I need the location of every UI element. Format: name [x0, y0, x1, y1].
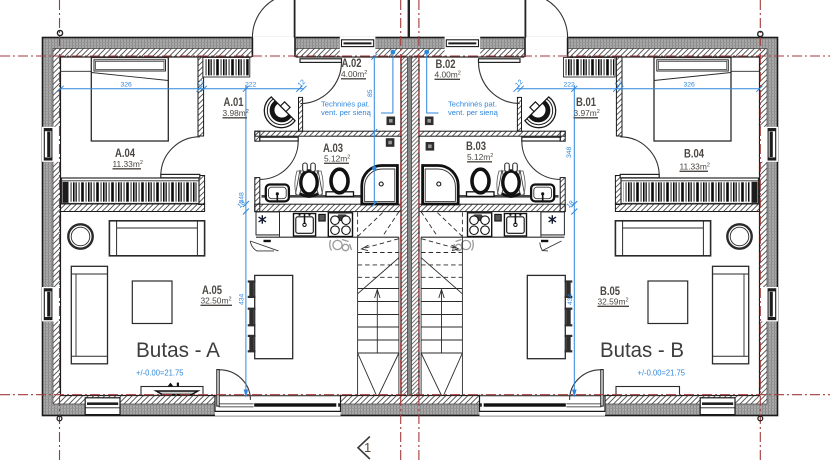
svg-text:vent. per sieną: vent. per sieną — [321, 108, 372, 117]
svg-text:4.00m2: 4.00m2 — [341, 69, 367, 79]
svg-text:11.33m2: 11.33m2 — [680, 162, 710, 172]
svg-text:1: 1 — [364, 440, 371, 455]
svg-text:+/-0.00=21.75: +/-0.00=21.75 — [638, 369, 686, 378]
svg-text:326: 326 — [121, 82, 133, 89]
svg-text:222: 222 — [245, 82, 257, 89]
svg-text:32.59m2: 32.59m2 — [598, 297, 629, 307]
svg-text:32.50m2: 32.50m2 — [201, 296, 232, 306]
svg-text:vent. per sieną: vent. per sieną — [448, 108, 499, 117]
svg-text:Butas - A: Butas - A — [136, 338, 221, 362]
svg-text:222: 222 — [564, 82, 576, 89]
svg-text:Butas - B: Butas - B — [600, 338, 684, 362]
svg-text:B.04: B.04 — [684, 149, 704, 161]
svg-text:11.33m2: 11.33m2 — [113, 159, 143, 169]
svg-text:4.00m2: 4.00m2 — [435, 70, 461, 80]
svg-text:3.98m2: 3.98m2 — [223, 108, 249, 118]
svg-text:434: 434 — [567, 293, 574, 305]
svg-text:+/-0.00=21.75: +/-0.00=21.75 — [136, 369, 184, 378]
svg-text:434: 434 — [239, 293, 246, 305]
svg-text:3.97m2: 3.97m2 — [574, 108, 600, 118]
svg-text:85: 85 — [367, 89, 374, 97]
svg-text:348: 348 — [566, 146, 573, 158]
svg-text:5.12m2: 5.12m2 — [467, 152, 493, 162]
svg-text:5.12m2: 5.12m2 — [324, 154, 350, 164]
svg-text:326: 326 — [684, 82, 696, 89]
